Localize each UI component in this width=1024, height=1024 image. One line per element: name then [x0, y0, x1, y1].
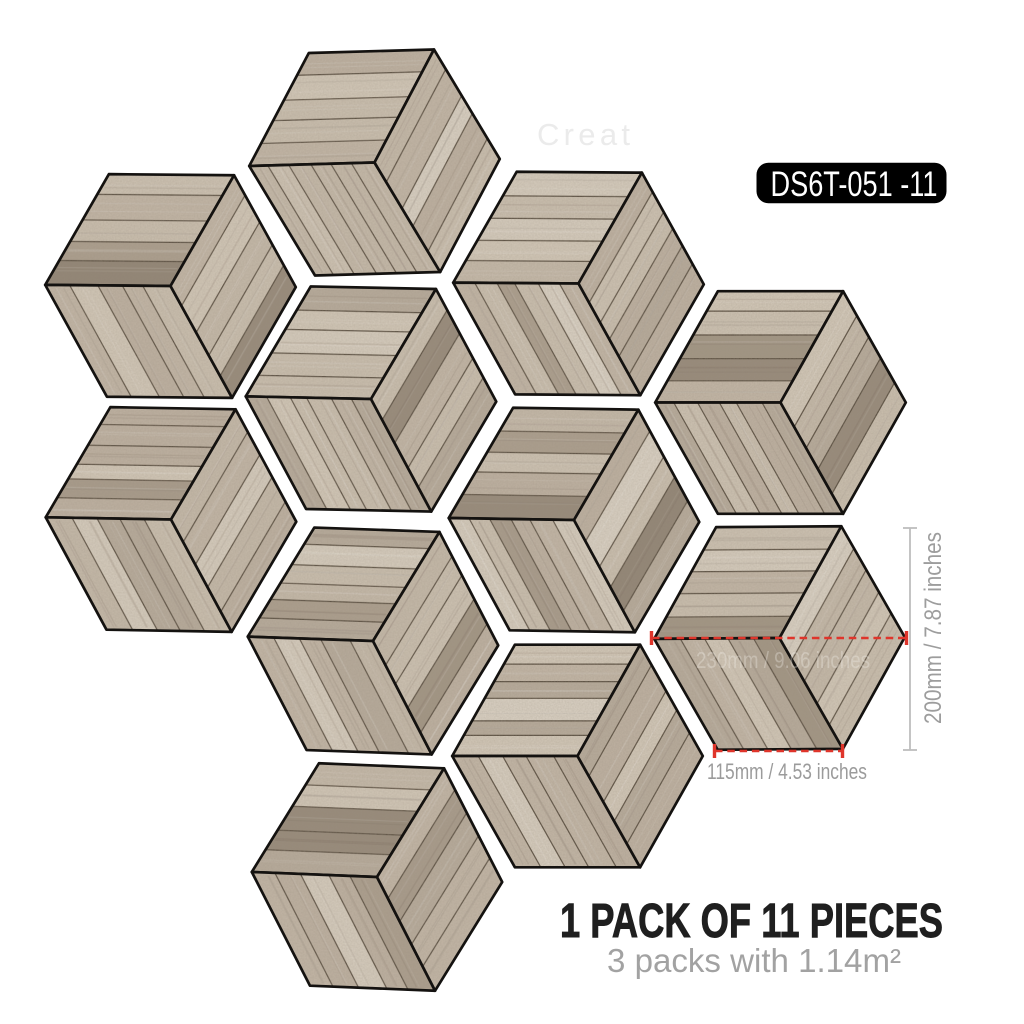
svg-text:200mm / 7.87 inches: 200mm / 7.87 inches [920, 532, 947, 724]
svg-text:Creat: Creat [537, 117, 637, 152]
svg-text:3 packs with 1.14m²: 3 packs with 1.14m² [607, 942, 901, 979]
svg-text:115mm / 4.53 inches: 115mm / 4.53 inches [707, 759, 867, 784]
svg-text:DS6T-051 -11: DS6T-051 -11 [771, 165, 938, 204]
svg-text:230mm / 9.06 inches: 230mm / 9.06 inches [696, 647, 870, 673]
svg-text:1 PACK OF 11 PIECES: 1 PACK OF 11 PIECES [560, 895, 943, 948]
